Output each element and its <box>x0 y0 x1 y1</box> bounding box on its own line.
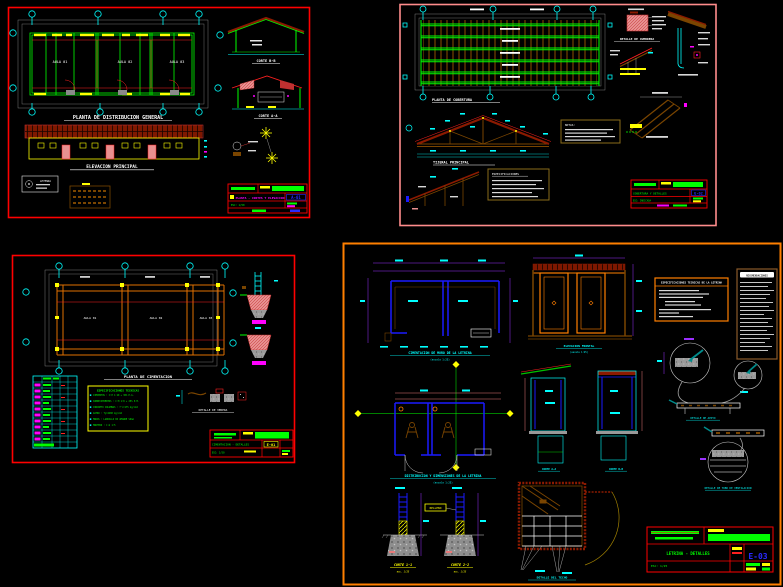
e02-notes-box-2: NOTAS: <box>561 120 620 143</box>
e02-correas-detail <box>626 92 687 138</box>
e01-specs-title: ESPECIFICACIONES TECNICAS <box>97 389 139 393</box>
e01-spec-line-3: CONCRETO COLUMNAS : f'c=175 kg/cm2 <box>93 406 138 409</box>
e03-techo-plan: DETALLE DEL TECHO <box>519 483 619 580</box>
e03-brown-notes: RECOMENDACIONES <box>737 269 777 359</box>
e03-seccion-1: CORTE A-A <box>521 364 571 471</box>
e03-elevacion: ELEVACION FRONTAL (escala 1:25) <box>528 255 642 355</box>
e01-spec-line-2: SOBRECIMIENTOS : C:H 1:8 + 25% P.M. <box>93 400 139 403</box>
e03-titleblock: LETRINA - DETALLES E-03 ESC: 1/25 <box>647 527 773 572</box>
a01-room-2: AULA 02 <box>118 60 133 64</box>
e02-titleblock: COBERTURA Y DETALLES E-02 ESC: INDICADA <box>631 180 707 208</box>
e03-corte2-scale: esc. 1/25 <box>454 571 467 574</box>
e02-plano-label: COBERTURA Y DETALLES <box>633 192 667 196</box>
sheet-e03: CIMENTACION DE MURO DE LA LETRINA (escal… <box>344 244 781 585</box>
a01-legend: LEYENDA <box>22 176 58 192</box>
a01-corte-b: CORTE B-B <box>228 18 304 63</box>
e01-dim-texts <box>80 276 210 278</box>
a01-room-1: AULA 01 <box>53 60 68 64</box>
e03-tubo-label: DETALLE DE TUBO DE VENTILACION <box>705 486 752 490</box>
e03-escala-label: ESC: 1/25 <box>651 564 667 568</box>
sheet-e01: AULA 01 AULA 02 AULA 03 PLANTA DE CIMENT… <box>13 256 295 463</box>
a01-elev-ticks <box>204 140 207 158</box>
cad-drawing: AULA 01 AULA 02 AULA 03 PLANTA DE DISTRI… <box>0 0 783 587</box>
e01-spec-line-6: MORTERO : C:A 1:5 <box>93 424 116 427</box>
a01-corte-b-title: CORTE B-B <box>257 59 276 63</box>
e02-alero-detail <box>610 48 653 75</box>
e02-notes2-title: NOTAS: <box>565 123 575 127</box>
e01-room-3: AULA 03 <box>200 316 213 320</box>
e01-plano-label: CIMENTACION - DETALLES <box>212 443 249 447</box>
e03-seccion2-label: CORTE B-B <box>609 467 623 471</box>
a01-grid-bubbles <box>10 11 223 115</box>
e03-circle-detail-1 <box>657 338 710 383</box>
e03-corte2-title: CORTE 2-2 <box>451 563 469 567</box>
a01-plano-label: PLANTA - CORTES Y ELEVACION <box>236 196 285 200</box>
a01-legend-title: LEYENDA <box>40 179 51 183</box>
a01-titleblock: PLANTA - CORTES Y ELEVACION A-01 ESC: 1/… <box>228 184 307 213</box>
sheet-a01: AULA 01 AULA 02 AULA 03 PLANTA DE DISTRI… <box>9 8 310 218</box>
e02-truss: TIJERAL PRINCIPAL <box>406 113 551 165</box>
e03-orange-notes: ESPECIFICACIONES TECNICAS DE LA LETRINA <box>655 278 728 321</box>
e03-blue-walls <box>391 281 499 336</box>
e03-distribucion-title: DISTRIBUCION Y DIMENSIONES DE LA LETRINA <box>405 474 482 478</box>
e03-sheet-border <box>344 244 781 585</box>
e02-escala-label: ESC: INDICADA <box>633 200 652 203</box>
e03-corte1-title: CORTE 1-1 <box>394 563 412 567</box>
e03-elevacion-scale: (escala 1:25) <box>570 351 588 354</box>
e03-circle-detail-2 <box>734 361 762 393</box>
e03-wc-glyphs <box>406 423 454 439</box>
e01-walls <box>57 285 224 355</box>
a01-room-3: AULA 03 <box>170 60 185 64</box>
e03-relleno-callout: RELLENO <box>425 504 456 511</box>
e03-corte-1: CORTE 1-1 esc. 1/25 <box>382 487 429 574</box>
e01-sheet-border <box>13 256 295 463</box>
e02-notes-box-1: ESPECIFICACIONES <box>488 169 549 200</box>
e01-escala-label: ESC: 1/50 <box>212 452 225 455</box>
a01-calamina-detail <box>70 183 110 208</box>
e02-cumbrera-title: DETALLE DE CUMBRERA <box>620 37 655 41</box>
e01-spec-line-1: CIMIENTOS : C:H 1:10 + 30% P.G. <box>93 394 134 397</box>
e01-columns <box>55 283 220 351</box>
e02-canaleta-detail <box>668 12 710 76</box>
e03-relleno-label: RELLENO <box>430 506 442 510</box>
e03-cortes: CORTE 1-1 esc. 1/25 CORTE 2-2 esc. 1/25 <box>382 487 486 574</box>
a01-elevation-title: ELEVACION PRINCIPAL <box>86 164 138 170</box>
e03-apoyo-label: DETALLE DE APOYO <box>691 416 716 420</box>
e03-sheet-number: E-03 <box>748 552 767 561</box>
e03-cimentacion-plan: CIMENTACION DE MURO DE LA LETRINA (escal… <box>360 260 518 362</box>
a01-detail-cluster <box>233 127 278 164</box>
e01-detail-2 <box>240 327 271 365</box>
e02-roof-plan: PLANTA DE COBERTURA <box>403 6 612 103</box>
e03-apoyo-detail: DETALLE DE APOYO <box>669 382 745 420</box>
cad-canvas: AULA 01 AULA 02 AULA 03 PLANTA DE DISTRI… <box>0 0 783 587</box>
e01-room-1: AULA 01 <box>84 316 97 320</box>
e01-detail-1 <box>240 272 278 324</box>
e03-plano-label: LETRINA - DETALLES <box>666 551 710 556</box>
a01-elev-doors <box>62 145 156 159</box>
e03-orange-notes-title: ESPECIFICACIONES TECNICAS DE LA LETRINA <box>661 281 722 285</box>
e01-spec-line-4: ACERO : fy=4200 kg/cm2 <box>93 412 123 415</box>
e01-specs-box: ESPECIFICACIONES TECNICAS CIMIENTOS : C:… <box>88 386 148 431</box>
e01-titleblock: CIMENTACION - DETALLES E-01 ESC: 1/50 <box>210 430 293 457</box>
e02-plan-title: PLANTA DE COBERTURA <box>432 98 473 102</box>
e01-foundation-plan: AULA 01 AULA 02 AULA 03 PLANTA DE CIMENT… <box>23 263 236 380</box>
e02-apoyo-detail <box>406 168 479 210</box>
e03-techo-title: DETALLE DEL TECHO <box>537 576 568 580</box>
e01-sheet-number: E-01 <box>267 443 276 447</box>
e03-elevacion-title: ELEVACION FRONTAL <box>564 344 595 348</box>
e01-plan-title: PLANTA DE CIMENTACION <box>124 374 173 379</box>
e03-distribucion-plan: DISTRIBUCION Y DIMENSIONES DE LA LETRINA… <box>390 390 501 485</box>
sheet-e02: PLANTA DE COBERTURA TIJERAL PRINCIPAL <box>400 5 716 226</box>
e01-spec-line-5: MUROS : LADRILLO KK AMARRE SOGA <box>93 418 135 421</box>
e03-corte1-scale: esc. 1/25 <box>397 571 410 574</box>
a01-plan-title: PLANTA DE DISTRIBUCION GENERAL <box>73 115 163 121</box>
a01-elevation: ELEVACION PRINCIPAL <box>25 125 207 170</box>
a01-windows <box>34 34 190 95</box>
e02-notes-title: ESPECIFICACIONES <box>492 172 519 176</box>
e01-red-lines <box>57 302 224 340</box>
e03-brown-notes-title: RECOMENDACIONES <box>746 274 768 277</box>
a01-corte-a-title: CORTE A-A <box>259 114 279 118</box>
e02-truss-title: TIJERAL PRINCIPAL <box>433 161 469 165</box>
e01-room-2: AULA 02 <box>150 316 163 320</box>
e03-corte-2: CORTE 2-2 esc. 1/25 <box>440 487 486 574</box>
e03-seccion-2: CORTE B-B <box>596 371 642 471</box>
a01-corte-a: CORTE A-A <box>232 76 304 118</box>
a01-escala-label: ESC: 1/50 <box>231 203 245 207</box>
a01-sheet-number: A-01 <box>291 195 301 200</box>
e03-seccion1-label: CORTE A-A <box>542 467 556 471</box>
e03-cimentacion-title: CIMENTACION DE MURO DE LA LETRINA <box>408 351 471 355</box>
e02-cumbrera-detail: DETALLE DE CUMBRERA <box>614 9 666 42</box>
e03-cimentacion-scale: (escala 1:25) <box>430 358 450 362</box>
e01-vereda-detail: DETALLE DE VEREDA <box>176 389 246 412</box>
a01-walls <box>30 33 194 95</box>
e03-distribucion-scale: (escala 1:25) <box>433 481 453 485</box>
e03-door-swings <box>405 455 457 473</box>
e02-sheet-number: E-02 <box>694 192 703 196</box>
e01-schedule-table <box>33 376 77 448</box>
a01-floor-plan: AULA 01 AULA 02 AULA 03 PLANTA DE DISTRI… <box>10 11 223 121</box>
e03-tubo-detail: DETALLE DE TUBO DE VENTILACION <box>700 427 764 490</box>
e01-vereda-label: DETALLE DE VEREDA <box>199 408 228 412</box>
